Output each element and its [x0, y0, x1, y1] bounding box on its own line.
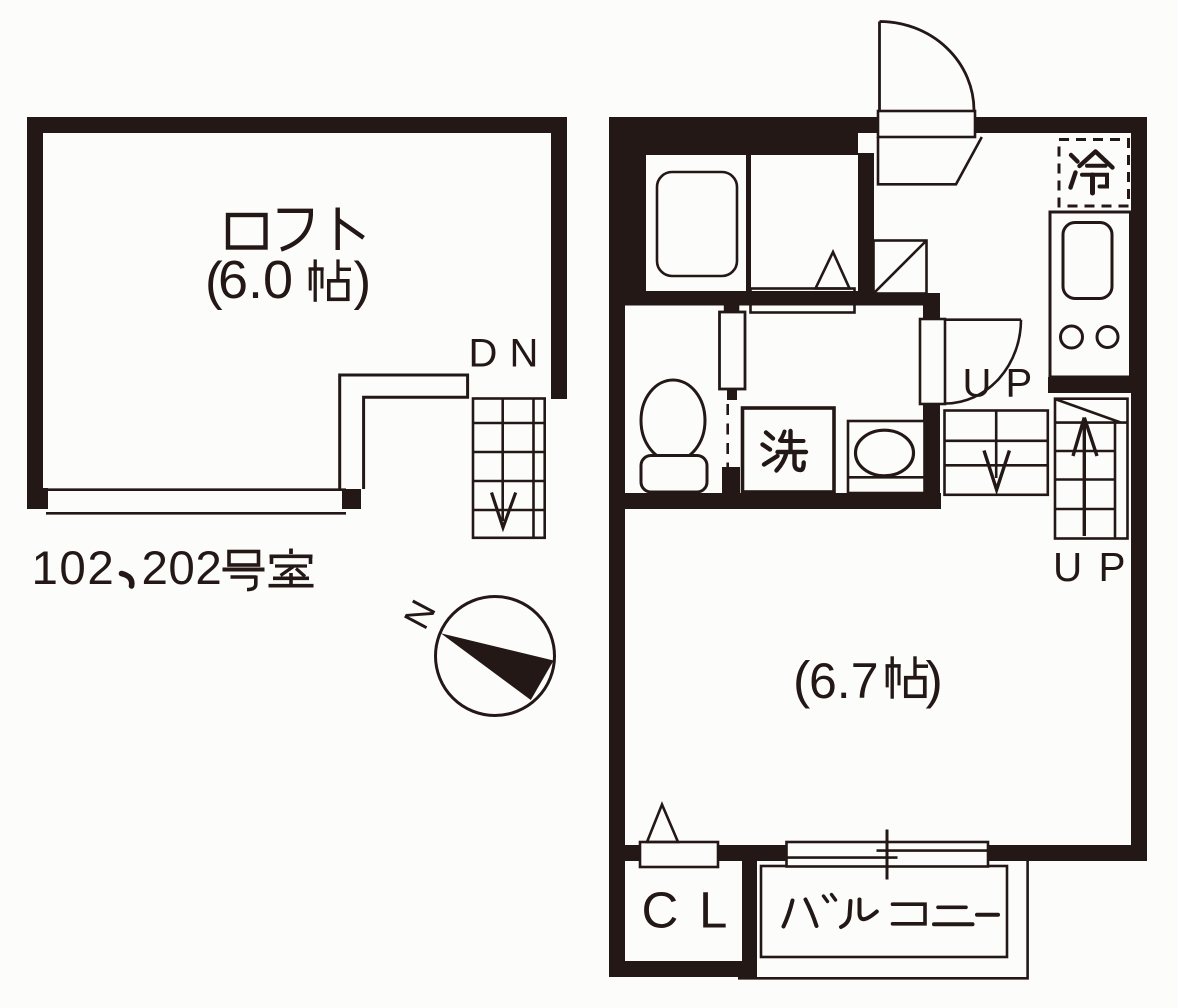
svg-text:202: 202	[142, 542, 223, 595]
svg-text:D: D	[469, 332, 498, 376]
svg-text:L: L	[699, 882, 727, 939]
svg-text:): )	[354, 252, 372, 311]
svg-text:U: U	[1053, 544, 1082, 590]
svg-text:P: P	[1006, 362, 1033, 406]
svg-text:P: P	[1099, 544, 1126, 590]
svg-text:N: N	[510, 332, 539, 376]
svg-text:): )	[926, 652, 943, 710]
svg-text:C: C	[642, 882, 679, 939]
svg-text:6.0: 6.0	[218, 250, 293, 310]
svg-text:102: 102	[32, 542, 116, 595]
svg-text:U: U	[963, 362, 992, 406]
svg-text:6.7: 6.7	[809, 653, 879, 709]
